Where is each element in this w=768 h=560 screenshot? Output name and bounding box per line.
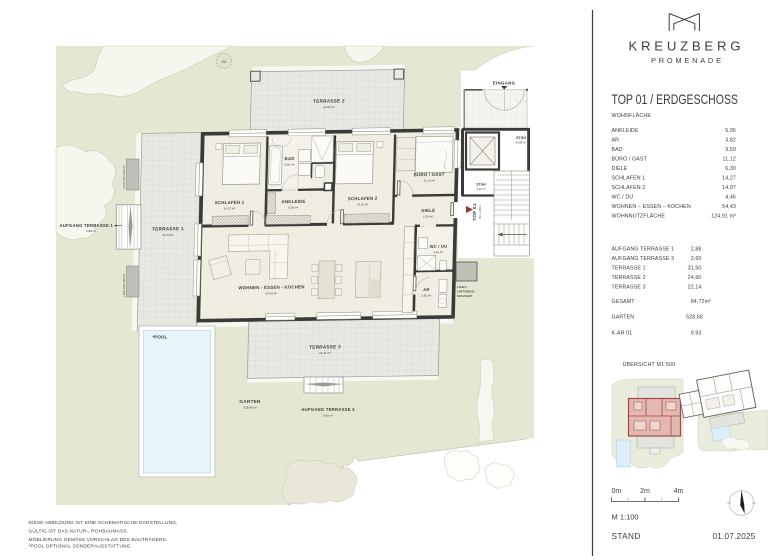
svg-text:3,82 m²: 3,82 m² [421, 293, 431, 297]
svg-text:14,27 m²: 14,27 m² [224, 206, 236, 210]
svg-text:5,90 m²: 5,90 m² [288, 205, 298, 209]
svg-text:PROMENADE: PROMENADE [651, 56, 721, 65]
svg-text:LICHT.-: LICHT.- [457, 285, 468, 289]
svg-text:3,60 m²: 3,60 m² [323, 414, 333, 418]
svg-text:SCHLAFEN 1: SCHLAFEN 1 [215, 200, 245, 205]
svg-text:SCHLAFEN 1: SCHLAFEN 1 [612, 175, 646, 181]
svg-text:3,82: 3,82 [725, 137, 736, 143]
svg-text:*POOL OPTIONAL SONDERAUSSTATTU: *POOL OPTIONAL SONDERAUSSTATTUNG [29, 544, 131, 550]
svg-text:11,12 m²: 11,12 m² [423, 178, 434, 182]
svg-text:TERRASSE 3: TERRASSE 3 [309, 344, 341, 349]
svg-text:K-AR 01: K-AR 01 [612, 331, 633, 337]
svg-text:24,60: 24,60 [688, 275, 702, 281]
svg-text:STAND: STAND [612, 532, 641, 541]
svg-text:ANKLEIDE: ANKLEIDE [281, 199, 305, 204]
svg-text:LICHTSCHACHT: LICHTSCHACHT [122, 273, 126, 296]
svg-text:*POOL: *POOL [153, 335, 168, 340]
svg-text:WC / DU: WC / DU [612, 194, 634, 200]
svg-text:MÖBLIERUNG GEMÄSS VORSCHLAG DE: MÖBLIERUNG GEMÄSS VORSCHLAG DES BAUTRÄGE… [29, 536, 168, 543]
svg-text:SCHACHT: SCHACHT [457, 294, 472, 298]
svg-text:BÜRO / GAST: BÜRO / GAST [414, 172, 445, 177]
svg-text:4,46: 4,46 [725, 194, 736, 200]
svg-text:54,43: 54,43 [722, 204, 736, 210]
svg-text:KREUZBERG: KREUZBERG [629, 39, 741, 54]
svg-text:DIELE: DIELE [612, 166, 628, 172]
svg-text:01.07.2025: 01.07.2025 [713, 532, 756, 541]
svg-text:GÜLTIG IST DAS NATUR-, ROHBAUM: GÜLTIG IST DAS NATUR-, ROHBAUMASS. [29, 527, 129, 534]
svg-text:BÜRO / GAST: BÜRO / GAST [612, 155, 648, 162]
svg-text:WOHNEN – ESSEN – KOCHEN: WOHNEN – ESSEN – KOCHEN [612, 204, 691, 210]
svg-text:SCHLAFEN 2: SCHLAFEN 2 [612, 185, 646, 191]
svg-text:14,97: 14,97 [722, 185, 736, 191]
svg-text:DIELE: DIELE [421, 208, 435, 213]
svg-text:LÜFTUNGS.-: LÜFTUNGS.- [457, 289, 476, 293]
svg-text:11,12: 11,12 [723, 156, 736, 162]
svg-text:40,88 m²: 40,88 m² [516, 140, 526, 144]
svg-text:AUFGANG TERRASSE 3: AUFGANG TERRASSE 3 [612, 256, 675, 262]
svg-text:AR: AR [612, 137, 620, 143]
svg-text:4,46 m²: 4,46 m² [433, 250, 443, 254]
svg-text:AUFGANG TERRASSE 1: AUFGANG TERRASSE 1 [60, 223, 114, 228]
svg-text:WOHNFLÄCHE: WOHNFLÄCHE [612, 112, 652, 119]
svg-text:528,68: 528,68 [686, 315, 703, 321]
svg-text:124,91 m²: 124,91 m² [711, 213, 736, 219]
svg-text:2m: 2m [640, 488, 650, 495]
svg-text:GESAMT: GESAMT [612, 299, 636, 305]
svg-text:TERRASSE 1: TERRASSE 1 [612, 266, 646, 272]
svg-text:BAD: BAD [284, 156, 294, 161]
svg-text:WOHNEN - ESSEN - KOCHEN: WOHNEN - ESSEN - KOCHEN [238, 284, 304, 290]
svg-text:TOP 01 / ERDGESCHOSS: TOP 01 / ERDGESCHOSS [612, 92, 739, 107]
svg-text:SCHLAFEN 2: SCHLAFEN 2 [348, 196, 378, 201]
svg-text:AUFGANG TERRASSE 1: AUFGANG TERRASSE 1 [612, 247, 675, 253]
svg-text:TERRASSE 3: TERRASSE 3 [612, 285, 646, 291]
svg-text:STGH: STGH [476, 183, 486, 187]
svg-text:ÜBERSICHT M1:500: ÜBERSICHT M1:500 [623, 361, 676, 368]
svg-text:TOP 01: TOP 01 [472, 203, 477, 221]
svg-text:GARTEN: GARTEN [239, 399, 261, 404]
svg-text:22,14 m²: 22,14 m² [319, 351, 331, 355]
svg-text:2,88: 2,88 [691, 247, 702, 253]
svg-text:LICHTSCHACHT: LICHTSCHACHT [122, 165, 126, 188]
svg-text:2,88 m²: 2,88 m² [86, 229, 96, 233]
svg-text:TERRASSE 2: TERRASSE 2 [612, 275, 646, 281]
svg-text:84,72m²: 84,72m² [691, 299, 711, 305]
svg-text:BAD: BAD [612, 147, 623, 153]
svg-text:3,60: 3,60 [691, 256, 702, 262]
svg-text:WC / DU: WC / DU [429, 244, 447, 249]
svg-text:31,50 m²: 31,50 m² [162, 233, 174, 237]
svg-text:EINGANG: EINGANG [493, 81, 516, 86]
svg-text:5,95: 5,95 [725, 128, 736, 134]
svg-text:64,43 m²: 64,43 m² [266, 291, 278, 295]
svg-text:AR: AR [423, 287, 430, 292]
svg-text:STGH: STGH [516, 136, 526, 140]
svg-text:528,68 m²: 528,68 m² [243, 406, 256, 410]
svg-text:RH: 2,90m: RH: 2,90m [478, 205, 482, 219]
svg-text:9,93: 9,93 [691, 331, 702, 337]
svg-text:M 1:100: M 1:100 [612, 513, 639, 522]
svg-text:22,14: 22,14 [688, 285, 702, 291]
svg-text:GARTEN: GARTEN [612, 315, 635, 321]
svg-text:9,59: 9,59 [725, 147, 736, 153]
svg-text:KO: KO [222, 60, 227, 64]
svg-text:31,50: 31,50 [688, 266, 702, 272]
svg-text:4m: 4m [674, 488, 684, 495]
svg-text:14,97 m²: 14,97 m² [357, 202, 369, 206]
svg-text:TERRASSE 2: TERRASSE 2 [313, 98, 345, 103]
svg-text:6,30: 6,30 [725, 166, 736, 172]
svg-text:WOHNNUTZFLÄCHE: WOHNNUTZFLÄCHE [612, 212, 666, 219]
svg-text:AUFGANG TERRASSE 3: AUFGANG TERRASSE 3 [301, 407, 355, 412]
svg-text:0m: 0m [612, 488, 622, 495]
svg-text:14,27: 14,27 [722, 175, 736, 181]
svg-text:9,59 m²: 9,59 m² [285, 163, 295, 167]
svg-text:TERRASSE 1: TERRASSE 1 [152, 226, 184, 231]
svg-text:24,60 m²: 24,60 m² [323, 105, 335, 109]
svg-text:ANKLEIDE: ANKLEIDE [612, 128, 640, 134]
svg-text:6,30 m²: 6,30 m² [423, 214, 433, 218]
svg-text:4,40 m²: 4,40 m² [477, 187, 486, 191]
svg-text:DIESE ABBILDUNG IST EINE SCHEM: DIESE ABBILDUNG IST EINE SCHEMATISCHE DA… [29, 520, 178, 526]
